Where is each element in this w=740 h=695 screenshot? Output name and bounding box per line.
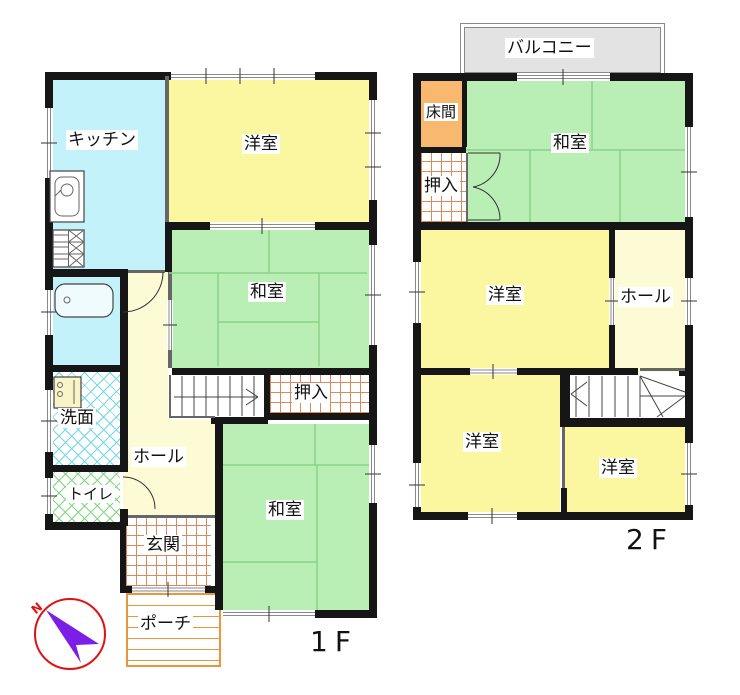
room-kitchen-1f <box>49 76 165 270</box>
room-label-japanese-2f: 和室 <box>551 133 589 153</box>
room-label-western-1f: 洋室 <box>242 134 280 154</box>
floor-label-1f: 1F <box>310 625 358 658</box>
room-label-western-bottom-left-2f: 洋室 <box>463 432 501 452</box>
room-label-hall-1f: ホール <box>131 447 186 467</box>
floor-label-2f: 2F <box>626 523 674 556</box>
room-hall-1f <box>123 272 168 518</box>
room-label-tokonoma-2f: 床間 <box>424 103 458 121</box>
room-label-western-center-2f: 洋室 <box>486 285 524 305</box>
room-label-japanese-bottom-1f: 和室 <box>266 500 304 520</box>
stairs-1f <box>170 375 268 420</box>
room-label-kitchen-1f: キッチン <box>66 130 138 150</box>
room-label-entrance-1f: 玄関 <box>144 535 182 555</box>
floor-plan-canvas: N キッチン 洋室 和室 押入 和室 洗面 トイレ ホール 玄関 ポーチ 1F … <box>0 0 740 695</box>
room-label-porch-1f: ポーチ <box>138 614 193 634</box>
room-label-balcony-2f: バルコニー <box>505 38 594 58</box>
compass-icon: N <box>29 599 105 669</box>
room-label-toilet-1f: トイレ <box>66 485 115 503</box>
room-label-closet-1f: 押入 <box>292 383 330 403</box>
room-hall-1f-lower <box>168 418 215 518</box>
room-bath-1f <box>49 277 120 368</box>
room-label-closet-2f: 押入 <box>422 176 460 196</box>
compass-north-label: N <box>29 600 46 617</box>
room-label-japanese-middle-1f: 和室 <box>248 282 286 302</box>
room-label-western-bottom-right-2f: 洋室 <box>599 458 637 478</box>
room-label-washroom-1f: 洗面 <box>58 408 96 428</box>
room-label-hall-2f: ホール <box>618 287 673 307</box>
stairs-2f <box>570 375 685 418</box>
